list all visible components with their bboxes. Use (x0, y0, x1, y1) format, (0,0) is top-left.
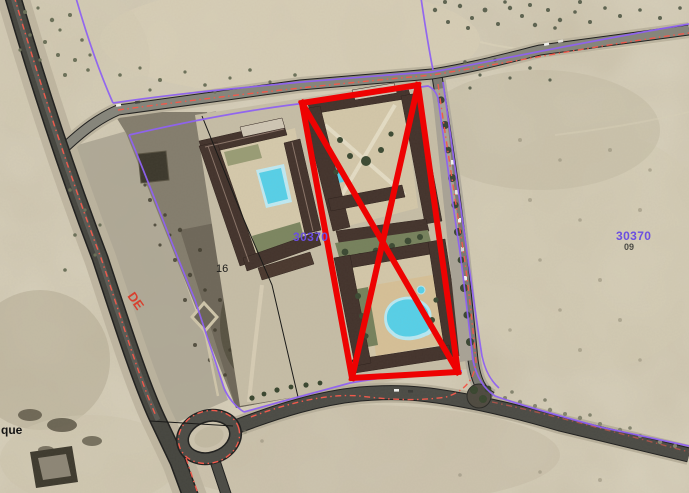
grain-overlay (0, 0, 689, 493)
label-parcel-09: 09 (624, 242, 634, 252)
map-viewport[interactable]: 30370 30370 09 16 DE que (0, 0, 689, 493)
label-street-fragment: que (1, 423, 23, 437)
label-parcel-30370-right: 30370 (616, 229, 651, 243)
label-parcel-30370-left: 30370 (293, 230, 328, 244)
label-plot-16: 16 (216, 263, 228, 275)
aerial-canvas: 30370 30370 09 16 DE que (0, 0, 689, 493)
